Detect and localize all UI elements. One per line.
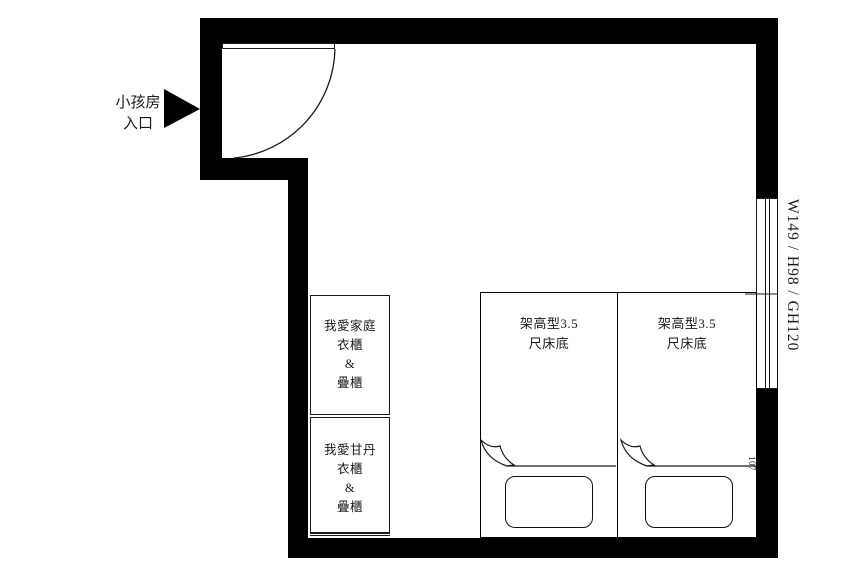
entrance-arrow-icon: [164, 89, 200, 128]
cabinet-top-line4: 疊櫃: [310, 374, 390, 393]
wall-top: [200, 18, 778, 44]
cabinet-bottom-line2: 衣櫃: [310, 460, 390, 479]
bed-right-line1: 架高型3.5: [617, 314, 757, 334]
floorplan-canvas: 我愛家庭 衣櫃 & 疊櫃 我愛甘丹 衣櫃 & 疊櫃 架高型3.5 尺床底 架高型…: [0, 0, 854, 572]
cabinet-top-line2: 衣櫃: [310, 336, 390, 355]
pillow-right: [645, 476, 733, 528]
wall-note-label: 107: [747, 456, 757, 480]
window-dimension-label: W149 / H98 / GH120: [783, 199, 801, 391]
pillow-left: [505, 476, 593, 528]
entrance-label-line1: 小孩房: [110, 93, 166, 114]
wall-left-lower: [288, 158, 308, 558]
bed-right-label: 架高型3.5 尺床底: [617, 314, 757, 354]
wall-right-upper: [756, 18, 778, 198]
wall-left-upper: [200, 18, 222, 180]
entrance-label: 小孩房 入口: [110, 93, 166, 135]
entrance-label-line2: 入口: [110, 114, 166, 135]
cabinet-bottom-line4: 疊櫃: [310, 498, 390, 517]
cabinet-bottom-line3: &: [310, 479, 390, 498]
wall-right-lower: [756, 389, 778, 558]
cabinet-bottom-line1: 我愛甘丹: [310, 441, 390, 460]
bed-left-label: 架高型3.5 尺床底: [480, 314, 618, 354]
door-swing-arc: [234, 49, 335, 158]
bed-left-line1: 架高型3.5: [480, 314, 618, 334]
bed-left-line2: 尺床底: [480, 334, 618, 354]
cabinet-bottom-base-line: [310, 533, 390, 536]
cabinet-top-label: 我愛家庭 衣櫃 & 疊櫃: [310, 317, 390, 393]
cabinet-top-line1: 我愛家庭: [310, 317, 390, 336]
cabinet-top-line3: &: [310, 355, 390, 374]
wall-bottom: [288, 538, 778, 558]
window-symbol: [756, 198, 778, 389]
door-leaf: [222, 43, 335, 49]
bed-right-line2: 尺床底: [617, 334, 757, 354]
cabinet-bottom-label: 我愛甘丹 衣櫃 & 疊櫃: [310, 441, 390, 517]
